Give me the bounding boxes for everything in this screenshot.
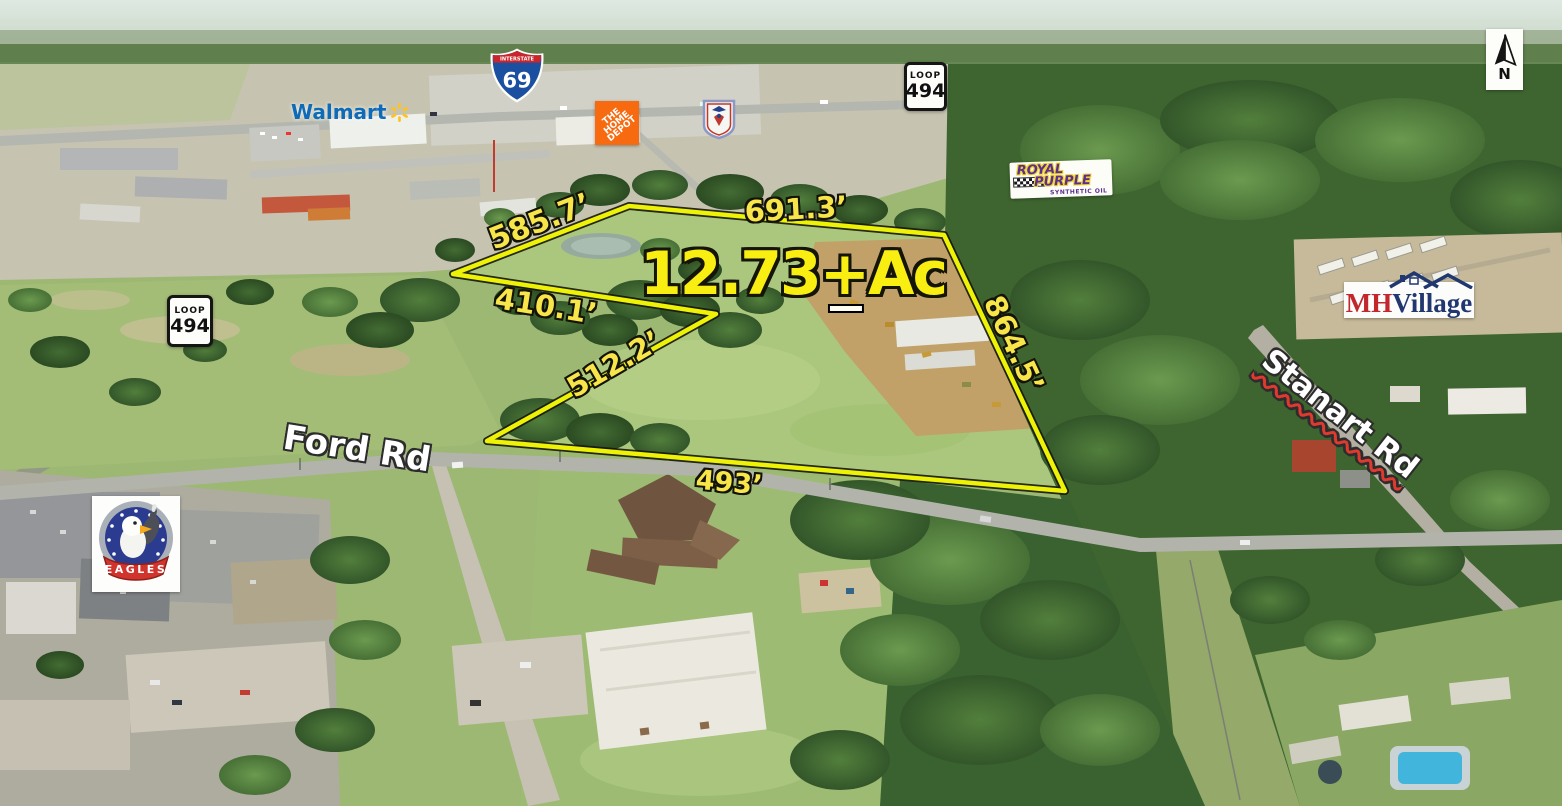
acreage-plus-minus: + bbox=[820, 239, 868, 309]
royal-purple-tagline: SYNTHETIC OIL bbox=[1050, 187, 1108, 196]
interstate-header-text: INTERSTATE bbox=[500, 56, 535, 62]
eagles-banner-text: EAGLES bbox=[105, 563, 168, 576]
loop-494-sign-west: LOOP 494 bbox=[167, 295, 213, 347]
horizon bbox=[0, 0, 1562, 72]
mhvillage-logo: MHVillage bbox=[1344, 282, 1474, 318]
eagles-school-logo: EAGLES bbox=[92, 496, 180, 592]
interstate-shield-graphic: INTERSTATE 69 bbox=[490, 47, 544, 104]
north-arrow: N bbox=[1486, 29, 1523, 90]
mhvillage-village: Village bbox=[1392, 288, 1472, 318]
school-crest-logo bbox=[702, 99, 736, 140]
north-arrow-icon bbox=[1492, 32, 1518, 68]
acreage-minus-bar bbox=[828, 304, 864, 313]
royal-purple-logo: ROYAL PURPLE SYNTHETIC OIL bbox=[1009, 159, 1112, 199]
school-crest-graphic bbox=[702, 99, 736, 140]
walmart-logo: Walmart bbox=[291, 100, 409, 124]
walmart-spark-icon bbox=[390, 103, 409, 122]
walmart-wordmark: Walmart bbox=[291, 100, 386, 124]
mhvillage-mh: MH bbox=[1346, 288, 1393, 318]
acreage-label: 12.73+Ac bbox=[640, 239, 946, 309]
eagles-crest-graphic: EAGLES bbox=[92, 496, 180, 592]
north-arrow-letter: N bbox=[1498, 67, 1511, 82]
acreage-unit: Ac bbox=[868, 239, 946, 309]
loop-sign-number: 494 bbox=[906, 82, 946, 101]
measurement-south: 493’ bbox=[694, 465, 763, 502]
interstate-69-shield: INTERSTATE 69 bbox=[490, 47, 544, 104]
mhvillage-roofs-icon bbox=[1388, 269, 1474, 289]
home-depot-wordmark: THE HOME DEPOT bbox=[596, 103, 637, 143]
loop-494-sign-north: LOOP 494 bbox=[904, 62, 947, 111]
interstate-number-text: 69 bbox=[502, 69, 531, 93]
measurement-north: 691.3’ bbox=[744, 189, 848, 228]
loop-sign-number: 494 bbox=[170, 317, 210, 336]
aerial-listing-image: 585.7’ 691.3’ 410.1’ 512.2’ 864.5’ 493’ … bbox=[0, 0, 1562, 806]
home-depot-logo: THE HOME DEPOT bbox=[595, 101, 639, 145]
acreage-number: 12.73 bbox=[640, 239, 820, 309]
